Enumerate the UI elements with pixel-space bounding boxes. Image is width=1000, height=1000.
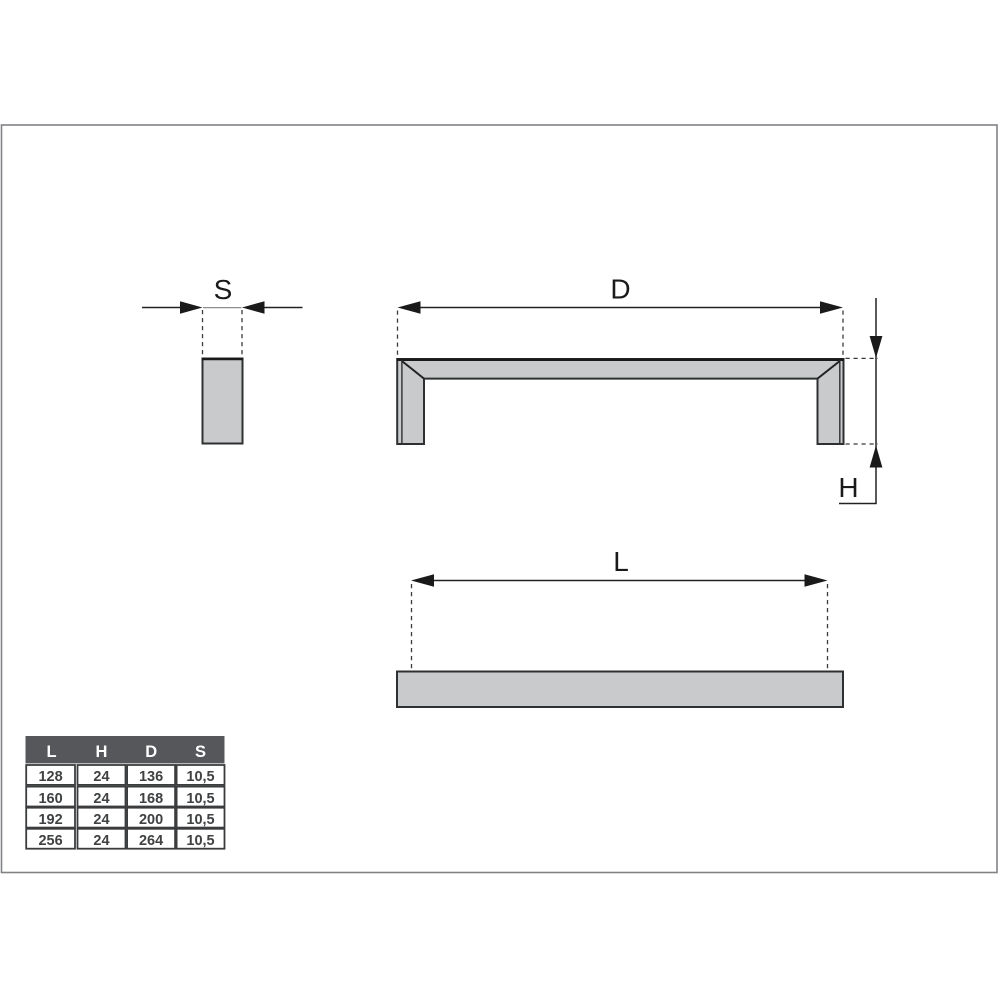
svg-text:S: S — [195, 743, 206, 761]
svg-text:168: 168 — [139, 791, 163, 807]
svg-text:L: L — [46, 743, 56, 761]
svg-text:192: 192 — [38, 812, 62, 828]
svg-text:200: 200 — [139, 812, 163, 828]
svg-text:264: 264 — [139, 833, 163, 849]
svg-text:10,5: 10,5 — [186, 833, 214, 849]
svg-text:24: 24 — [93, 769, 109, 785]
svg-text:H: H — [96, 743, 108, 761]
svg-text:24: 24 — [93, 791, 109, 807]
svg-text:24: 24 — [93, 833, 109, 849]
svg-text:10,5: 10,5 — [186, 769, 214, 785]
svg-text:136: 136 — [139, 769, 163, 785]
svg-text:L: L — [613, 546, 629, 577]
svg-text:D: D — [145, 743, 157, 761]
svg-text:10,5: 10,5 — [186, 812, 214, 828]
svg-text:H: H — [838, 472, 858, 503]
svg-text:128: 128 — [38, 769, 62, 785]
svg-text:10,5: 10,5 — [186, 791, 214, 807]
svg-text:S: S — [214, 274, 233, 305]
svg-text:160: 160 — [38, 791, 62, 807]
svg-text:256: 256 — [38, 833, 62, 849]
svg-text:24: 24 — [93, 812, 109, 828]
svg-text:D: D — [610, 274, 630, 305]
